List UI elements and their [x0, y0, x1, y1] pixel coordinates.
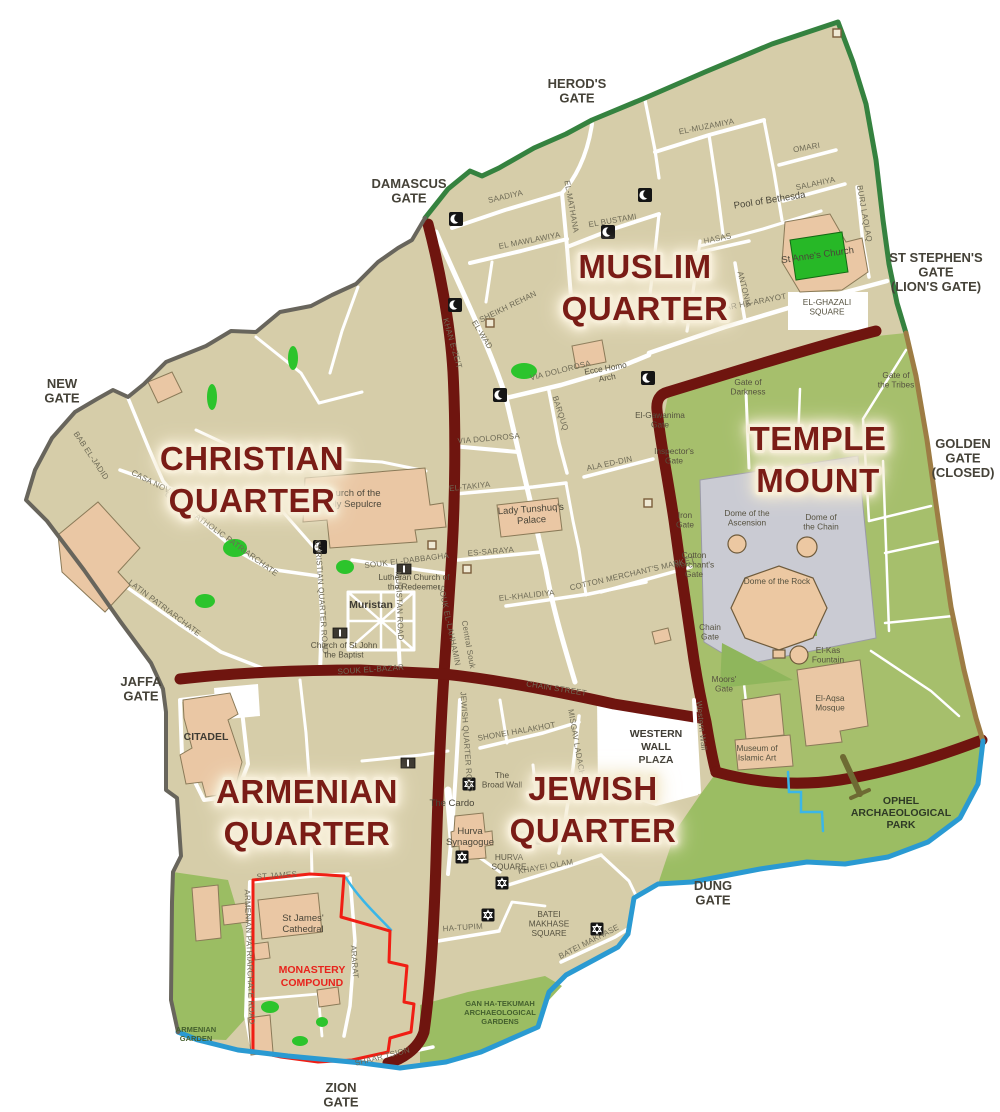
tree-park-icon: [316, 1017, 328, 1027]
site-marker-icon: [428, 541, 436, 549]
church-marker-icon: [333, 628, 347, 638]
tree-park-icon: [207, 384, 217, 410]
muristan-label: Muristan: [349, 599, 393, 611]
mosque-icon: [449, 212, 463, 226]
tree-park-icon: [195, 594, 215, 608]
church-marker-icon: [401, 758, 415, 768]
monastery-building-1: [253, 942, 270, 960]
synagogue-icon: [482, 909, 495, 922]
mosque-icon: [493, 388, 507, 402]
tree-park-icon: [336, 560, 354, 574]
mosque-icon: [448, 298, 462, 312]
site-marker-icon: [833, 29, 841, 37]
dome-of-rock-label: Dome of the Rock: [744, 576, 811, 586]
armenian-building-1: [192, 885, 221, 941]
herods-gate-label: HEROD'SGATE: [548, 76, 607, 106]
st-stephens-gate-label: ST STEPHEN'SGATE(LION'S GATE): [889, 250, 983, 294]
dome-of-the-chain: [797, 537, 817, 557]
monastery-building-3: [317, 987, 340, 1007]
dome-of-rock-annex: [773, 650, 785, 658]
gate-of-tribes-label: Gate ofthe Tribes: [878, 370, 914, 390]
chain-gate-label: ChainGate: [699, 622, 721, 642]
the-cardo-label: The Cardo: [430, 798, 475, 809]
dome-of-ascension-label: Dome of theAscension: [724, 508, 770, 528]
site-marker-icon: [644, 499, 652, 507]
jerusalem-old-city-map-page: SAADIYAEL-MATHANAEL BUSTAMIEL MAWLAWIYAE…: [0, 0, 1000, 1112]
st-james-cathedral-label: St James'Cathedral: [282, 913, 324, 935]
tree-park-icon: [261, 1001, 279, 1013]
iron-gate-label: IronGate: [676, 510, 694, 530]
el-kas-fountain-label: El-KasFountain: [812, 645, 845, 665]
museum-islamic-art-label: Museum ofIslamic Art: [736, 743, 778, 763]
el-ghazali-square-label: EL-GHAZALISQUARE: [803, 297, 851, 317]
lutheran-redeemer-label: Lutheran Church ofthe Redeemer: [378, 572, 450, 592]
mosque-icon: [638, 188, 652, 202]
mosque-icon: [601, 225, 615, 239]
el-aqsa-mosque-label: El-AqsaMosque: [815, 693, 845, 713]
mosque-icon: [641, 371, 655, 385]
jerusalem-old-city-map: SAADIYAEL-MATHANAEL BUSTAMIEL MAWLAWIYAE…: [0, 0, 1000, 1112]
monastery-compound-label: MONASTERYCOMPOUND: [279, 964, 346, 989]
dome-of-the-ascension: [728, 535, 746, 553]
synagogue-icon: [496, 877, 509, 890]
gate-of-darkness-label: Gate ofDarkness: [730, 377, 765, 397]
dung-gate-label: DUNGGATE: [694, 878, 732, 908]
hurva-square-label: HURVASQUARE: [491, 852, 527, 872]
tm-west-building: [742, 694, 784, 739]
site-marker-icon: [463, 565, 471, 573]
synagogue-icon: [456, 851, 469, 864]
new-gate-label: NEWGATE: [44, 376, 79, 406]
citadel-label: CITADEL: [184, 731, 229, 743]
tree-park-icon: [288, 346, 298, 370]
golden-gate-label: GOLDENGATE(CLOSED): [932, 436, 995, 480]
el-kas-fountain: [790, 646, 808, 664]
armenian-garden-label: ARMENIANGARDEN: [176, 1025, 216, 1043]
zion-gate-label: ZIONGATE: [323, 1080, 358, 1110]
tree-park-icon: [292, 1036, 308, 1046]
jaffa-gate-label: JAFFAGATE: [120, 674, 162, 704]
dome-of-chain-label: Dome ofthe Chain: [803, 512, 839, 532]
moors-gate-label: Moors'Gate: [712, 674, 737, 694]
